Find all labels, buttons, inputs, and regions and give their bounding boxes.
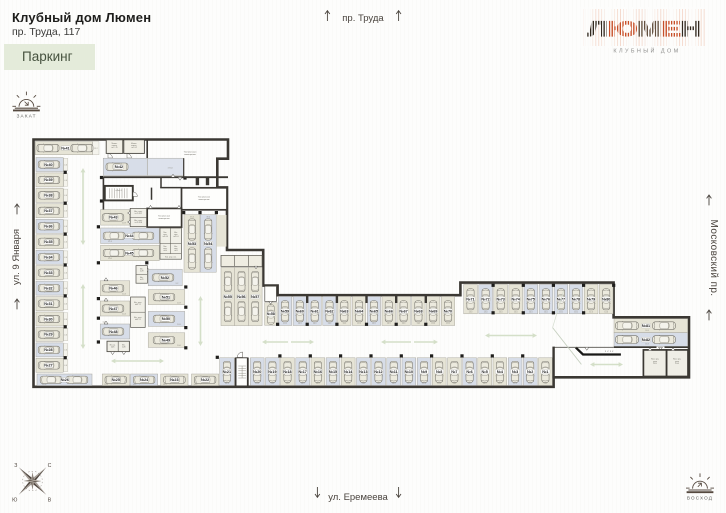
svg-text:ВОСХОД: ВОСХОД bbox=[687, 495, 713, 500]
svg-text:№42: №42 bbox=[115, 165, 123, 169]
svg-text:№35: №35 bbox=[44, 240, 52, 244]
svg-text:№17: №17 bbox=[299, 370, 307, 374]
svg-text:13.2: 13.2 bbox=[468, 383, 472, 385]
svg-text:№68: №68 bbox=[414, 310, 422, 314]
svg-text:№47: №47 bbox=[109, 307, 117, 311]
svg-text:15.2: 15.2 bbox=[104, 384, 108, 386]
svg-text:№57: №57 bbox=[251, 295, 259, 299]
svg-text:10.5: 10.5 bbox=[177, 324, 181, 326]
svg-text:Московский пр.: Московский пр. bbox=[708, 220, 719, 297]
svg-text:№1: №1 bbox=[542, 370, 548, 374]
svg-text:помещ.: помещ. bbox=[112, 145, 118, 147]
svg-text:№79: №79 bbox=[587, 298, 595, 302]
svg-text:№72: №72 bbox=[481, 298, 489, 302]
svg-text:Мес.хр.: Мес.хр. bbox=[110, 344, 116, 346]
svg-text:14.0: 14.0 bbox=[499, 311, 503, 313]
svg-text:20.6: 20.6 bbox=[675, 363, 679, 365]
svg-text:13.2: 13.2 bbox=[453, 383, 457, 385]
svg-text:13.2: 13.2 bbox=[417, 323, 421, 325]
svg-text:10.9: 10.9 bbox=[122, 223, 126, 225]
svg-text:13.2: 13.2 bbox=[301, 383, 305, 385]
svg-text:13.2: 13.2 bbox=[346, 383, 350, 385]
svg-text:Мес. хран.: Мес. хран. bbox=[134, 302, 142, 304]
svg-text:№12: №12 bbox=[374, 370, 382, 374]
svg-text:39.4: 39.4 bbox=[206, 217, 210, 219]
svg-text:10.4: 10.4 bbox=[122, 314, 126, 316]
svg-text:№62: №62 bbox=[325, 310, 333, 314]
svg-text:13.2: 13.2 bbox=[446, 323, 450, 325]
svg-text:39.4: 39.4 bbox=[190, 217, 194, 219]
svg-text:№27: №27 bbox=[44, 364, 52, 368]
svg-text:№11: №11 bbox=[390, 370, 398, 374]
svg-text:№9: №9 bbox=[421, 370, 427, 374]
svg-text:Машин.: Машин. bbox=[112, 143, 118, 145]
svg-text:№31: №31 bbox=[44, 302, 52, 306]
svg-text:№37: №37 bbox=[44, 209, 52, 213]
svg-text:13.2: 13.2 bbox=[437, 383, 441, 385]
svg-text:№78: №78 bbox=[572, 298, 580, 302]
svg-text:№3: №3 bbox=[512, 370, 518, 374]
svg-text:№73: №73 bbox=[497, 298, 505, 302]
svg-text:№14: №14 bbox=[344, 370, 353, 374]
svg-text:13.2: 13.2 bbox=[255, 383, 259, 385]
svg-text:14.0: 14.0 bbox=[514, 311, 518, 313]
svg-text:13.2: 13.2 bbox=[528, 383, 532, 385]
svg-text:№38: №38 bbox=[44, 194, 52, 198]
svg-text:13.2: 13.2 bbox=[357, 323, 361, 325]
svg-text:помещение: помещение bbox=[198, 199, 210, 201]
svg-text:№39: №39 bbox=[44, 178, 52, 182]
svg-text:13.2: 13.2 bbox=[271, 383, 275, 385]
svg-text:№66: №66 bbox=[385, 310, 393, 314]
svg-text:17.54: 17.54 bbox=[167, 168, 173, 170]
svg-text:30.6: 30.6 bbox=[108, 258, 112, 260]
svg-text:№60: №60 bbox=[296, 310, 304, 314]
svg-text:13.2: 13.2 bbox=[316, 383, 320, 385]
svg-text:№53: №53 bbox=[188, 242, 196, 246]
svg-text:13.2: 13.2 bbox=[392, 383, 396, 385]
svg-text:9.2: 9.2 bbox=[176, 283, 179, 285]
svg-text:Мес.: Мес. bbox=[164, 246, 168, 248]
svg-text:№6: №6 bbox=[467, 370, 473, 374]
svg-text:14.0: 14.0 bbox=[589, 311, 593, 313]
svg-text:13.2: 13.2 bbox=[431, 323, 435, 325]
svg-text:№41: №41 bbox=[61, 146, 69, 150]
svg-text:14.0: 14.0 bbox=[529, 311, 533, 313]
svg-text:л.Пас-1: л.Пас-1 bbox=[115, 190, 121, 192]
svg-text:14.0: 14.0 bbox=[544, 311, 548, 313]
svg-text:№18: №18 bbox=[283, 370, 291, 374]
svg-text:№55: №55 bbox=[224, 295, 232, 299]
svg-text:Мес.: Мес. bbox=[174, 246, 178, 248]
svg-text:№80: №80 bbox=[602, 298, 610, 302]
svg-text:16.8: 16.8 bbox=[645, 344, 649, 346]
svg-text:№64: №64 bbox=[355, 310, 364, 314]
svg-text:№50: №50 bbox=[162, 317, 170, 321]
svg-text:№40: №40 bbox=[44, 163, 52, 167]
svg-text:13.2: 13.2 bbox=[342, 323, 346, 325]
svg-text:Мес.: Мес. bbox=[164, 232, 168, 234]
svg-text:28.4: 28.4 bbox=[42, 384, 46, 386]
svg-text:14.0: 14.0 bbox=[574, 311, 578, 313]
svg-text:14.0: 14.0 bbox=[559, 311, 563, 313]
svg-text:№51: №51 bbox=[162, 295, 170, 299]
svg-text:№82: №82 bbox=[642, 338, 650, 342]
svg-text:13.2: 13.2 bbox=[298, 323, 302, 325]
svg-text:№43: №43 bbox=[109, 216, 117, 220]
svg-text:№81: №81 bbox=[642, 324, 650, 328]
svg-text:13.3: 13.3 bbox=[225, 383, 229, 385]
svg-text:13.2: 13.2 bbox=[422, 383, 426, 385]
svg-text:№46: №46 bbox=[109, 287, 117, 291]
svg-text:№44: №44 bbox=[125, 234, 134, 238]
svg-text:13.2: 13.2 bbox=[402, 323, 406, 325]
svg-text:13.2: 13.2 bbox=[387, 323, 391, 325]
svg-text:№78 0.98: №78 0.98 bbox=[135, 221, 143, 224]
svg-text:№8: №8 bbox=[436, 370, 442, 374]
svg-text:№28: №28 bbox=[44, 348, 52, 352]
svg-text:№24: №24 bbox=[140, 378, 149, 382]
svg-text:№20: №20 bbox=[253, 370, 261, 374]
svg-text:10.4: 10.4 bbox=[122, 294, 126, 296]
svg-text:Мес.: Мес. bbox=[140, 277, 144, 279]
svg-text:№63: №63 bbox=[340, 310, 348, 314]
svg-text:№15: №15 bbox=[329, 370, 337, 374]
svg-text:№23: №23 bbox=[170, 378, 178, 382]
svg-text:З: З bbox=[14, 463, 17, 469]
svg-text:13.2: 13.2 bbox=[286, 383, 290, 385]
svg-text:15.2: 15.2 bbox=[163, 384, 167, 386]
svg-text:№22: №22 bbox=[201, 378, 209, 382]
svg-text:хран.: хран. bbox=[174, 248, 178, 250]
svg-text:С: С bbox=[48, 463, 52, 469]
svg-text:№76: №76 bbox=[542, 298, 550, 302]
svg-text:14.0: 14.0 bbox=[469, 311, 473, 313]
svg-text:№21: №21 bbox=[223, 370, 231, 374]
svg-text:13.2: 13.2 bbox=[362, 383, 366, 385]
svg-text:№25: №25 bbox=[112, 378, 120, 382]
svg-text:№48: №48 bbox=[109, 330, 117, 334]
svg-text:№54: №54 bbox=[204, 242, 213, 246]
svg-text:№19: №19 bbox=[268, 370, 276, 374]
svg-text:31.8: 31.8 bbox=[108, 241, 112, 243]
svg-text:хран.: хран. bbox=[174, 234, 178, 236]
svg-text:хран.: хран. bbox=[163, 234, 167, 236]
svg-text:№59: №59 bbox=[281, 310, 289, 314]
svg-text:№70 0.97: №70 0.97 bbox=[135, 212, 143, 215]
svg-text:№75: №75 bbox=[527, 298, 535, 302]
svg-text:10.9: 10.9 bbox=[177, 302, 181, 304]
svg-text:Мес.: Мес. bbox=[174, 232, 178, 234]
svg-text:Машин.: Машин. bbox=[131, 143, 137, 145]
svg-text:КЛУБНЫЙ ДОМ: КЛУБНЫЙ ДОМ bbox=[613, 47, 680, 55]
svg-text:13.2: 13.2 bbox=[377, 383, 381, 385]
svg-text:№70: №70 bbox=[444, 310, 452, 314]
svg-text:13.2: 13.2 bbox=[313, 323, 317, 325]
svg-text:ул. 9 Января: ул. 9 Января bbox=[11, 229, 22, 285]
svg-text:№52: №52 bbox=[161, 276, 169, 280]
svg-text:13.2: 13.2 bbox=[483, 383, 487, 385]
svg-text:№16: №16 bbox=[314, 370, 322, 374]
svg-text:№26: №26 bbox=[61, 378, 69, 382]
svg-text:14.0: 14.0 bbox=[604, 311, 608, 313]
svg-text:13.2: 13.2 bbox=[283, 323, 287, 325]
svg-text:№49: №49 bbox=[162, 338, 170, 342]
svg-text:№56: №56 bbox=[237, 295, 245, 299]
svg-text:помещения: помещения bbox=[184, 154, 197, 156]
svg-text:№58: №58 bbox=[267, 312, 275, 316]
svg-text:№45: №45 bbox=[125, 251, 133, 255]
svg-text:№7: №7 bbox=[451, 370, 457, 374]
svg-text:15.2: 15.2 bbox=[194, 384, 198, 386]
svg-text:13.2: 13.2 bbox=[407, 383, 411, 385]
svg-text:15.2: 15.2 bbox=[133, 384, 137, 386]
svg-text:13.2: 13.2 bbox=[94, 148, 98, 150]
svg-text:13.2: 13.2 bbox=[544, 383, 548, 385]
svg-text:16.8: 16.8 bbox=[645, 330, 649, 332]
svg-text:№61: №61 bbox=[311, 310, 319, 314]
svg-text:№2: №2 bbox=[527, 370, 533, 374]
svg-text:Ю: Ю bbox=[12, 498, 17, 504]
svg-text:№67: №67 bbox=[399, 310, 407, 314]
svg-text:пр. Труда: пр. Труда bbox=[342, 13, 384, 24]
svg-text:№33: №33 bbox=[44, 271, 52, 275]
svg-text:№65: №65 bbox=[370, 310, 378, 314]
svg-text:13.2: 13.2 bbox=[498, 383, 502, 385]
svg-text:№32: №32 bbox=[44, 286, 52, 290]
svg-text:№13: №13 bbox=[359, 370, 367, 374]
svg-text:Мес. хран.: Мес. хран. bbox=[134, 317, 142, 319]
svg-text:Пом. убор. инв.: Пом. убор. инв. bbox=[165, 256, 177, 258]
svg-text:Мес.: Мес. bbox=[140, 268, 144, 270]
svg-text:14.0: 14.0 bbox=[484, 311, 488, 313]
svg-text:№5: №5 bbox=[482, 370, 488, 374]
svg-text:№69: №69 bbox=[429, 310, 437, 314]
svg-text:10.0: 10.0 bbox=[177, 345, 181, 347]
svg-text:ЗАКАТ: ЗАКАТ bbox=[17, 114, 37, 119]
svg-text:13.2: 13.2 bbox=[372, 323, 376, 325]
svg-text:13.2: 13.2 bbox=[513, 383, 517, 385]
svg-text:18.5: 18.5 bbox=[653, 363, 657, 365]
svg-text:№29: №29 bbox=[44, 333, 52, 337]
svg-text:13.2: 13.2 bbox=[331, 383, 335, 385]
svg-text:ул. Еремеева: ул. Еремеева bbox=[328, 492, 388, 503]
svg-text:№30: №30 bbox=[44, 317, 52, 321]
svg-text:13.2: 13.2 bbox=[328, 323, 332, 325]
svg-text:В: В bbox=[48, 498, 52, 504]
svg-text:№71: №71 bbox=[466, 298, 474, 302]
svg-text:№74: №74 bbox=[512, 298, 521, 302]
svg-text:помещ.: помещ. bbox=[131, 145, 137, 147]
svg-text:№36: №36 bbox=[44, 225, 52, 229]
svg-text:№34: №34 bbox=[44, 256, 53, 260]
svg-text:‹‹‹‹: ‹‹‹‹ bbox=[605, 349, 615, 353]
svg-text:№10: №10 bbox=[405, 370, 413, 374]
svg-text:№4: №4 bbox=[497, 370, 504, 374]
svg-text:Мес.: Мес. bbox=[122, 344, 126, 346]
svg-text:хран.: хран. bbox=[163, 248, 167, 250]
svg-text:помещения: помещения bbox=[158, 218, 169, 220]
